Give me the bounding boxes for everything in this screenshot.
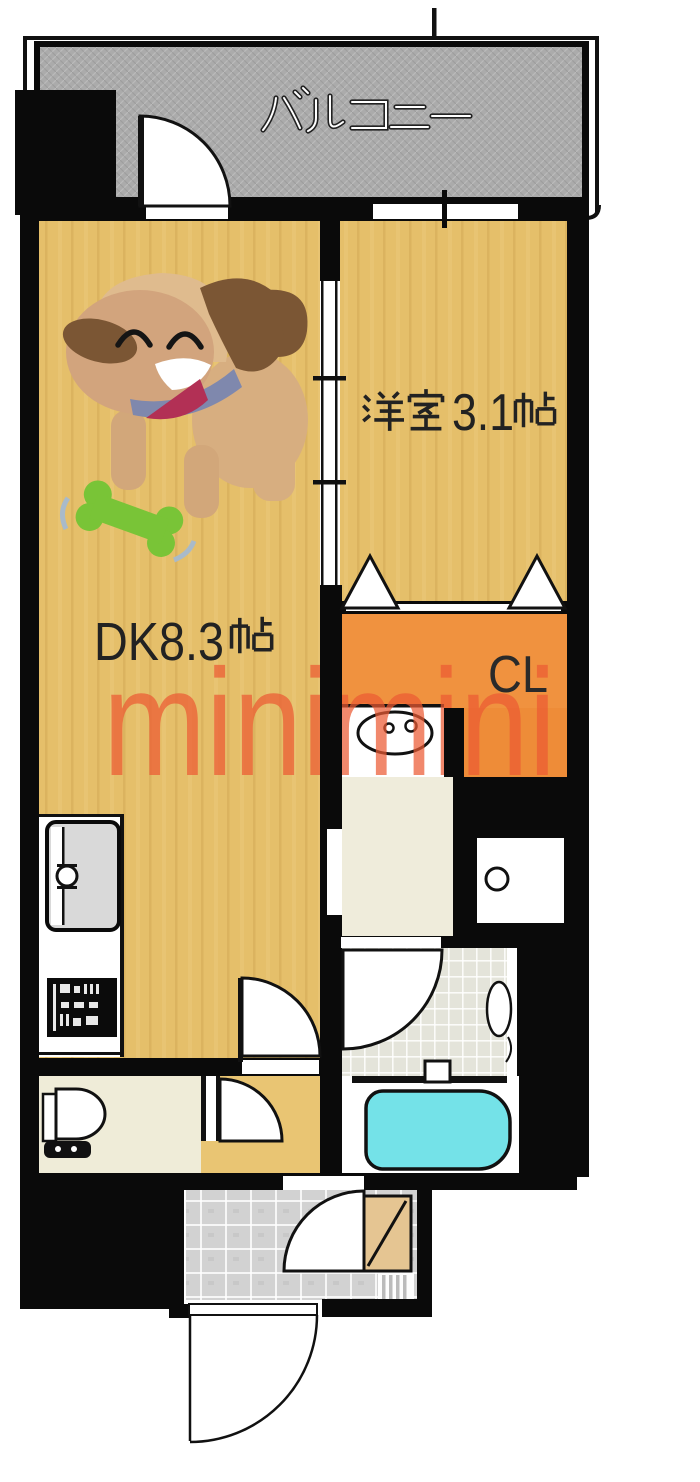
- svg-text:3.1: 3.1: [452, 384, 514, 442]
